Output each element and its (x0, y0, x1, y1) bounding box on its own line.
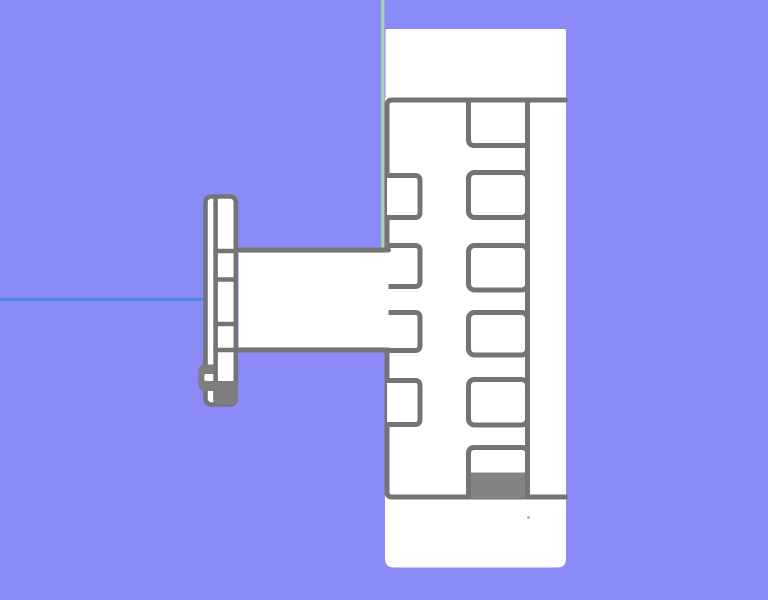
model-rack-body (385, 98, 566, 499)
model-beam (239, 253, 389, 348)
rack-slot (387, 381, 420, 425)
bracket-notch (204, 374, 214, 381)
rack-slot (387, 246, 420, 287)
viewport-canvas[interactable] (0, 0, 768, 600)
rack-tooth-solid-fill (471, 473, 525, 499)
rack-tooth (469, 313, 528, 356)
rack-slot (387, 313, 420, 351)
model-top-flange (386, 29, 567, 100)
bracket-foot (213, 381, 238, 405)
rack-slot (387, 176, 420, 218)
cad-viewport[interactable] (0, 0, 768, 600)
stray-dot (527, 516, 530, 519)
model-bottom-flange (385, 499, 566, 568)
rack-tooth (469, 173, 528, 218)
rack-tooth (469, 380, 528, 426)
rack-tooth (469, 246, 528, 291)
